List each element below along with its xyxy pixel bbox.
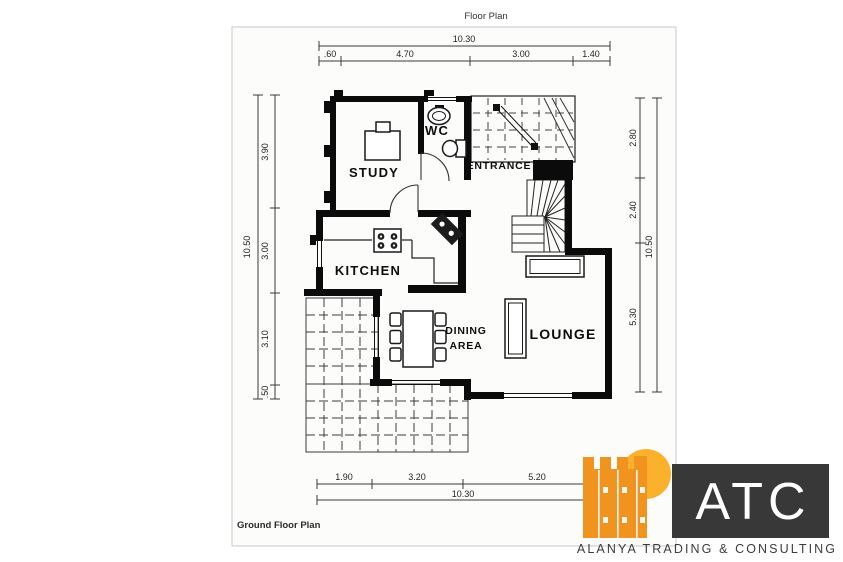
ground-floor-label: Ground Floor Plan bbox=[237, 520, 321, 531]
dim-label: 1.90 bbox=[335, 472, 353, 482]
scanned-page: Floor Plan 10.30 .60 4.70 3.00 1.40 10.5… bbox=[0, 0, 843, 562]
dim-label: .60 bbox=[324, 49, 337, 59]
room-label-wc: WC bbox=[425, 123, 449, 138]
floor-plan-canvas: Floor Plan 10.30 .60 4.70 3.00 1.40 10.5… bbox=[0, 0, 843, 562]
room-label-entrance: ENTRANCE bbox=[467, 160, 532, 172]
kitchen-stove bbox=[374, 229, 401, 252]
room-label-dining-2: AREA bbox=[450, 340, 483, 352]
room-label-dining-1: DINING bbox=[445, 325, 487, 337]
dim-label: 4.70 bbox=[396, 49, 414, 59]
room-label-kitchen: KITCHEN bbox=[335, 263, 401, 278]
lounge-sofa-top bbox=[526, 256, 584, 277]
floor-plan-title: Floor Plan bbox=[464, 11, 507, 22]
dim-label: 5.30 bbox=[628, 308, 638, 326]
dim-label: 2.80 bbox=[628, 129, 638, 147]
dim-label: 10.50 bbox=[242, 236, 252, 259]
dim-label: .50 bbox=[260, 386, 270, 399]
dim-label: 2.40 bbox=[628, 201, 638, 219]
dim-label: 10.50 bbox=[644, 236, 654, 259]
dim-label: 3.90 bbox=[260, 143, 270, 161]
dining-set bbox=[390, 311, 446, 367]
dim-label: 3.10 bbox=[260, 330, 270, 348]
dim-label: 5.20 bbox=[528, 472, 546, 482]
dim-label: 10.30 bbox=[453, 34, 476, 44]
dining-chair bbox=[390, 348, 401, 361]
dining-chair bbox=[435, 348, 446, 361]
logo-abbr: ATC bbox=[695, 473, 810, 531]
dim-label: 3.00 bbox=[260, 242, 270, 260]
dim-label: 3.00 bbox=[512, 49, 530, 59]
dining-table bbox=[403, 311, 433, 367]
dim-label: 10.30 bbox=[452, 489, 475, 499]
dim-label: 3.20 bbox=[408, 472, 426, 482]
room-label-lounge: LOUNGE bbox=[529, 326, 596, 342]
dim-label: 1.40 bbox=[582, 49, 600, 59]
dining-chair bbox=[390, 331, 401, 344]
dining-chair bbox=[390, 313, 401, 326]
wc-window bbox=[428, 96, 456, 102]
logo-company: ALANYA TRADING & CONSULTING bbox=[577, 542, 837, 556]
wc-toilet bbox=[443, 140, 467, 157]
lounge-sofa-left bbox=[505, 299, 526, 358]
room-label-study: STUDY bbox=[349, 165, 399, 180]
